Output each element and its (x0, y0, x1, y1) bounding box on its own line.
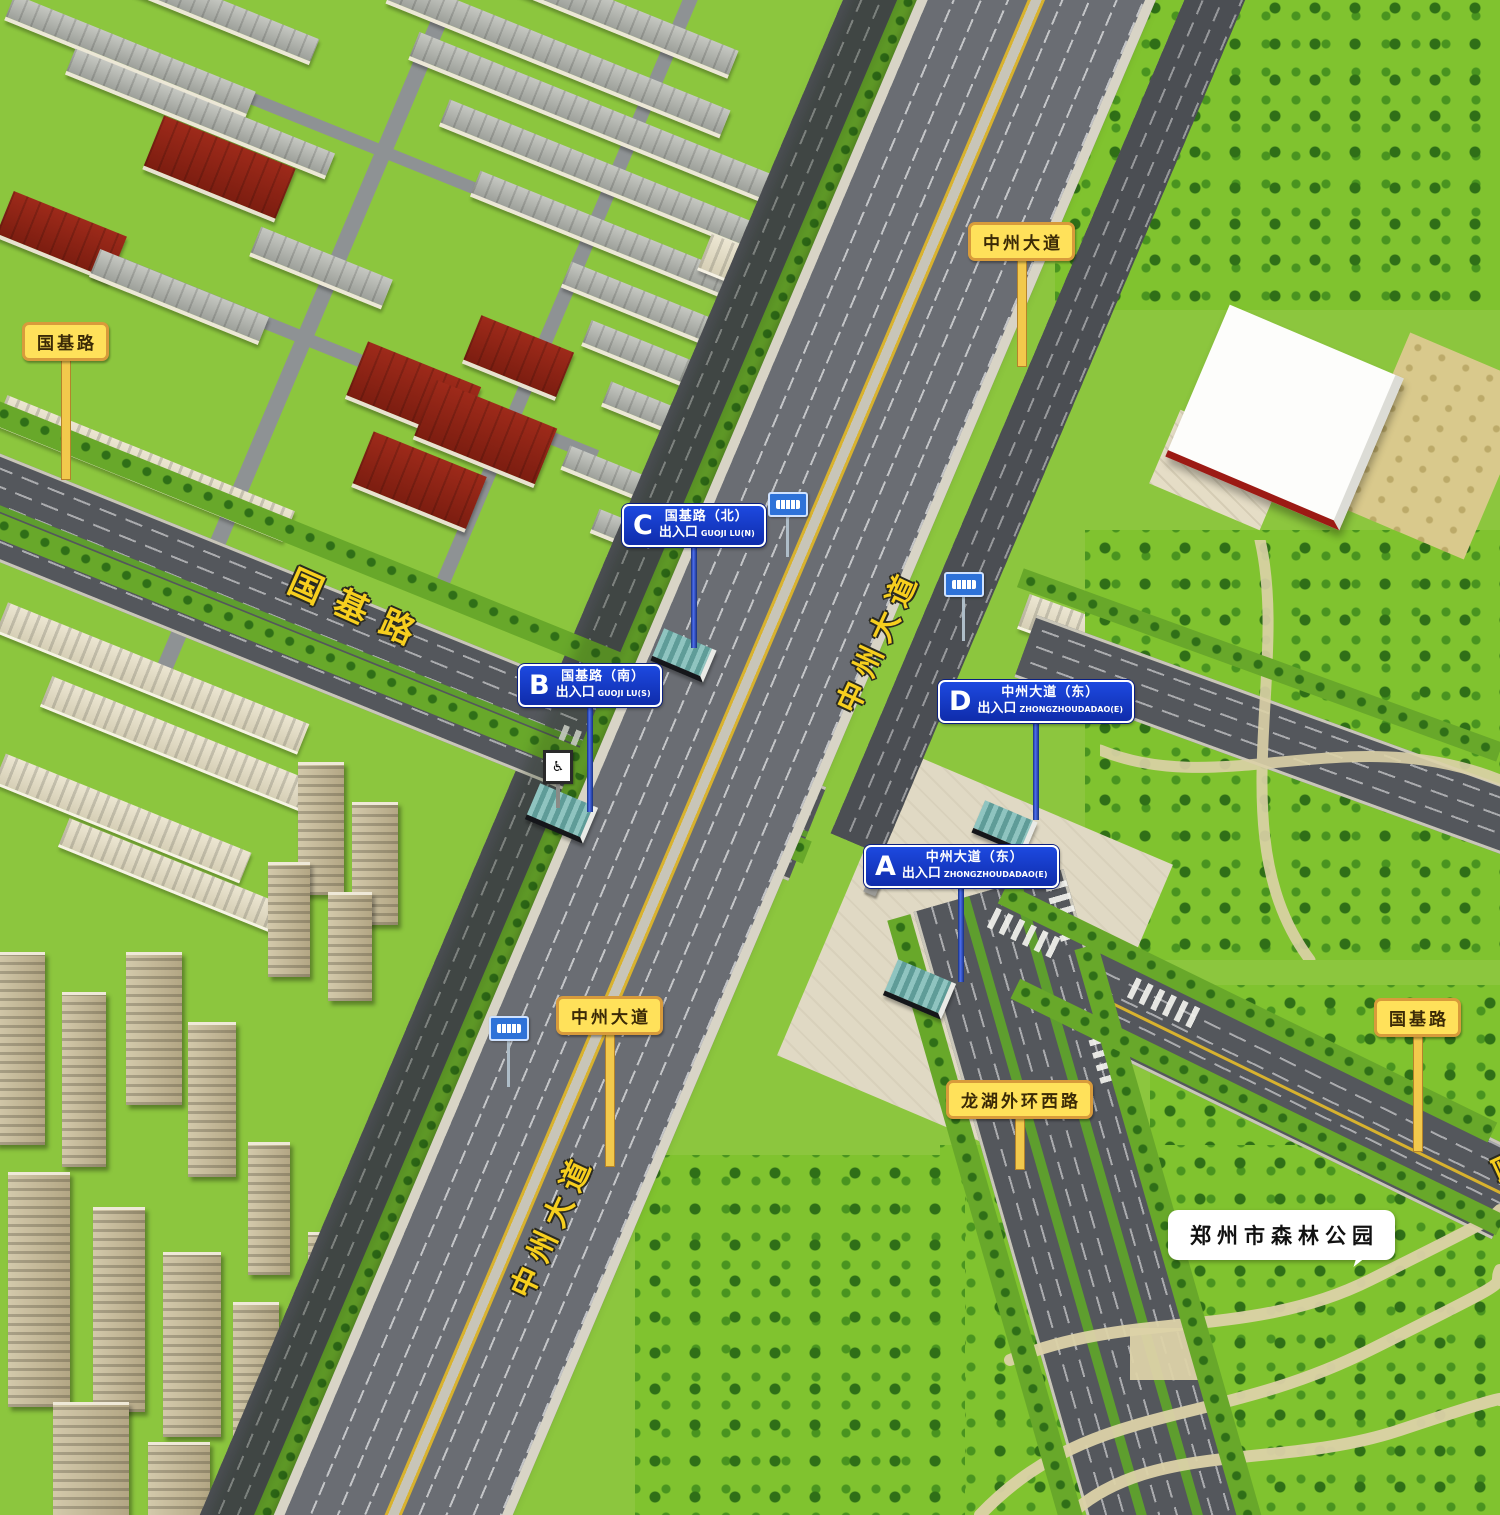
highrise-tower (248, 1142, 290, 1275)
exit-sign-b: B 国基路（南） 出入口 GUOJI LU(S) (518, 664, 662, 707)
bus-icon (768, 492, 808, 517)
exit-letter: B (529, 672, 550, 699)
exit-letter: D (949, 688, 971, 715)
bus-stop-sign (944, 572, 984, 597)
sign-pole (962, 593, 965, 641)
road-sign-zhongzhou-mid: 中州大道 (556, 996, 663, 1035)
exit-sign-plate: D 中州大道（东） 出入口 ZHONGZHOUDADAO(E) (938, 680, 1134, 723)
sign-pole (1413, 1028, 1423, 1152)
highrise-tower (328, 892, 372, 1001)
exit-road-name-cn: 国基路（南） (561, 669, 645, 685)
accessible-elevator-sign: ♿ (543, 750, 573, 784)
sign-pole (587, 704, 593, 812)
highrise-tower (8, 1172, 70, 1407)
sign-pole (605, 1026, 615, 1167)
highrise-tower (163, 1252, 221, 1437)
exit-road-name-en: GUOJI LU(N) (701, 529, 755, 539)
park-paths (1100, 540, 1500, 960)
exit-sign-plate: A 中州大道（东） 出入口 ZHONGZHOUDADAO(E) (864, 845, 1059, 888)
road-sign-guoji-left: 国基路 (22, 322, 109, 361)
exit-sign-d: D 中州大道（东） 出入口 ZHONGZHOUDADAO(E) (938, 680, 1134, 723)
exit-sign-plate: C 国基路（北） 出入口 GUOJI LU(N) (622, 504, 766, 547)
sign-pole (507, 1037, 510, 1087)
highrise-tower (62, 992, 106, 1167)
sign-pole (691, 544, 697, 648)
exit-entrance-label: 出入口 (556, 685, 595, 701)
exit-road-name-en: GUOJI LU(S) (598, 689, 651, 699)
road-sign-label: 国基路 (22, 322, 109, 361)
exit-road-name-cn: 中州大道（东） (926, 850, 1024, 866)
highrise-tower (93, 1207, 145, 1412)
park-label: 郑州市森林公园 (1168, 1210, 1395, 1260)
road-sign-label: 国基路 (1374, 998, 1461, 1037)
exit-road-name-en: ZHONGZHOUDADAO(E) (944, 870, 1048, 880)
bus-stop-sign (489, 1016, 529, 1041)
highrise-tower (188, 1022, 236, 1177)
exit-entrance-label: 出入口 (977, 701, 1016, 717)
sign-pole (1033, 720, 1039, 820)
sign-pole (958, 885, 964, 982)
road-sign-label: 中州大道 (556, 996, 663, 1035)
road-sign-longhu: 龙湖外环西路 (946, 1080, 1093, 1119)
exit-road-name-cn: 国基路（北） (665, 509, 749, 525)
highrise-tower (126, 952, 182, 1105)
highrise-tower (0, 952, 45, 1145)
road-sign-zhongzhou-top: 中州大道 (968, 222, 1075, 261)
park-plaza (1130, 1328, 1202, 1380)
highrise-tower (53, 1402, 129, 1515)
highrise-tower (268, 862, 310, 977)
exit-entrance-label: 出入口 (902, 866, 941, 882)
sign-pole (1017, 252, 1027, 367)
exit-letter: A (875, 853, 896, 880)
building-row (89, 249, 269, 345)
exit-letter: C (633, 512, 653, 539)
exit-sign-a: A 中州大道（东） 出入口 ZHONGZHOUDADAO(E) (864, 845, 1059, 888)
map-canvas: 国基路 中州大道 中州大道 国基路 中州大道 国基路 中州大道 龙湖外环西路 国… (0, 0, 1500, 1515)
bus-stop-sign (768, 492, 808, 517)
wheelchair-icon: ♿ (543, 750, 573, 784)
exit-entrance-label: 出入口 (659, 525, 698, 541)
exit-road-name-cn: 中州大道（东） (1001, 685, 1099, 701)
exit-sign-plate: B 国基路（南） 出入口 GUOJI LU(S) (518, 664, 662, 707)
tree-area (635, 1155, 965, 1515)
sign-pole (61, 352, 71, 480)
exit-sign-c: C 国基路（北） 出入口 GUOJI LU(N) (622, 504, 766, 547)
road-sign-label: 中州大道 (968, 222, 1075, 261)
highrise-tower (148, 1442, 210, 1515)
road-sign-label: 龙湖外环西路 (946, 1080, 1093, 1119)
bus-icon (489, 1016, 529, 1041)
road-sign-guoji-right: 国基路 (1374, 998, 1461, 1037)
sign-pole (786, 513, 789, 557)
exit-road-name-en: ZHONGZHOUDADAO(E) (1019, 705, 1123, 715)
park-paths (950, 1100, 1500, 1515)
sign-pole (1015, 1110, 1025, 1170)
bus-icon (944, 572, 984, 597)
